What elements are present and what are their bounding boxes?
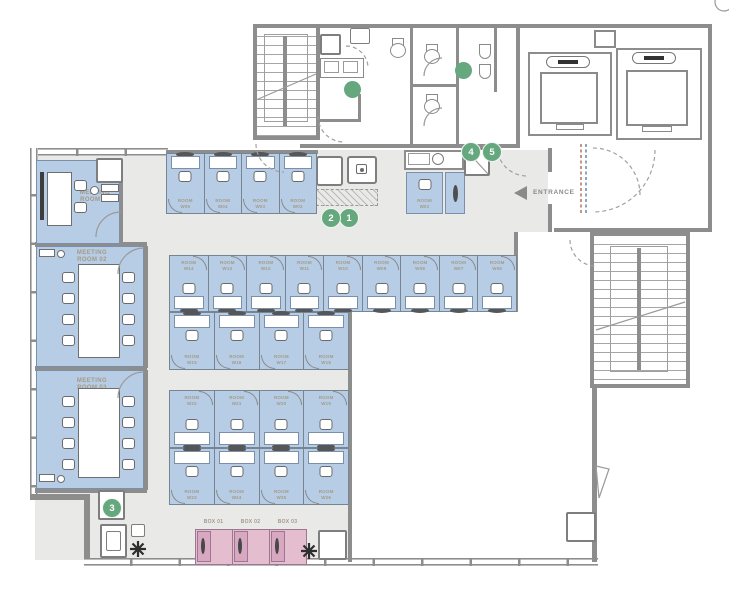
chair-icon: [122, 417, 135, 428]
work-booth-w01: ROOMW01: [406, 172, 443, 214]
meeting-table: [47, 172, 72, 226]
work-booth: ROOMW25: [259, 448, 305, 505]
sink-circle: [432, 153, 444, 165]
chair-icon: [62, 438, 75, 449]
chair-icon: [122, 314, 135, 325]
column: [96, 158, 123, 183]
chair-icon: [62, 459, 75, 470]
elevator-sill: [642, 126, 672, 132]
chair-icon: [62, 335, 75, 346]
urinal-icon: [479, 44, 491, 59]
chair-icon: [62, 272, 75, 283]
work-booth: ROOMW15: [169, 312, 215, 370]
work-booth: ROOMW12: [246, 255, 286, 312]
marker-3[interactable]: 3: [102, 498, 122, 518]
work-booth: ROOMW17: [259, 312, 305, 370]
wall: [358, 94, 361, 122]
booth-w01-label: ROOMW01: [407, 198, 442, 209]
hatched-counter: [316, 189, 378, 206]
elevator-door-2: [632, 52, 676, 64]
work-booth: ROOMW21: [214, 390, 260, 448]
work-booth: ROOMW05: [166, 153, 205, 214]
wall: [708, 24, 712, 232]
phone-box-3: [269, 529, 307, 565]
toilet-icon: [424, 44, 438, 62]
chair-icon: [62, 314, 75, 325]
equipment-box: [100, 524, 127, 558]
wall: [253, 136, 320, 140]
wall: [318, 119, 360, 122]
work-booth: ROOMW07: [439, 255, 479, 312]
phone-box-1: [195, 529, 233, 565]
wall: [84, 494, 90, 566]
marker-1[interactable]: 1: [339, 208, 359, 228]
credenza: [101, 184, 119, 192]
work-booth: ROOMW16: [214, 312, 260, 370]
work-booth: ROOMW10: [323, 255, 363, 312]
sink-basin: [324, 61, 339, 73]
window-wall-top-left: [30, 148, 168, 156]
elevator-door-1: [546, 56, 590, 68]
toilet-icon: [424, 94, 438, 112]
elevator-1: [540, 72, 598, 124]
work-booth: ROOMW03: [241, 153, 280, 214]
marker-4[interactable]: 4: [461, 142, 481, 162]
chair-icon: [122, 335, 135, 346]
chair-icon: [74, 202, 87, 213]
urinal-icon: [479, 64, 491, 79]
credenza: [101, 194, 119, 202]
work-booth: ROOMW20: [259, 390, 305, 448]
sideboard: [39, 474, 55, 482]
box-2-label: BOX 02: [232, 519, 269, 525]
work-booth: ROOMW09: [362, 255, 402, 312]
stool: [57, 475, 65, 483]
office-floor-plan: ENTRANCE MEETINGROOM 01 MEETINGROOM 02 M…: [0, 0, 729, 600]
wall: [548, 204, 552, 232]
green-dot: [455, 62, 472, 79]
chair-icon: [122, 293, 135, 304]
chair-icon: [62, 417, 75, 428]
marker-5[interactable]: 5: [482, 142, 502, 162]
chair-icon: [62, 293, 75, 304]
column: [566, 512, 596, 542]
stool: [90, 186, 99, 195]
work-booth: ROOMW19: [303, 390, 349, 448]
sink-basin: [343, 61, 358, 73]
wall: [516, 24, 520, 148]
work-booth: ROOMW06: [477, 255, 517, 312]
meeting-room-2-label: MEETINGROOM 02: [62, 250, 122, 264]
duct-box: [594, 30, 616, 48]
work-booth: ROOMW11: [285, 255, 325, 312]
duct-box: [350, 28, 370, 44]
chair-top-view: [453, 185, 458, 202]
meeting-table: [78, 264, 120, 358]
screen: [40, 172, 44, 220]
work-booth: ROOMW04: [204, 153, 243, 214]
chair-icon: [122, 438, 135, 449]
printer: [347, 156, 377, 184]
marker-2[interactable]: 2: [321, 208, 341, 228]
wall: [456, 28, 459, 146]
box-1-label: BOX 01: [195, 519, 232, 525]
chair-icon: [122, 396, 135, 407]
wall: [30, 494, 88, 500]
green-dot: [344, 81, 361, 98]
elevator-2: [626, 70, 688, 126]
work-booth: ROOMW02: [279, 153, 318, 214]
work-booth: ROOMW22: [169, 390, 215, 448]
janitor-closet: [320, 34, 341, 55]
elevator-sill: [556, 124, 584, 130]
wall: [686, 232, 690, 388]
wall: [590, 384, 690, 388]
locker: [316, 156, 343, 186]
booth-w01-vestibule: [445, 172, 465, 214]
work-booth: ROOMW08: [400, 255, 440, 312]
stair-rail: [637, 248, 641, 370]
work-booth: ROOMW13: [208, 255, 248, 312]
work-booth: ROOMW14: [169, 255, 209, 312]
wall: [548, 148, 552, 172]
entrance-label: ENTRANCE: [533, 189, 575, 196]
chair-icon: [122, 272, 135, 283]
chair-icon: [62, 396, 75, 407]
work-booth: ROOMW18: [303, 312, 349, 370]
stair-rail: [283, 36, 287, 126]
box-3-label: BOX 03: [269, 519, 306, 525]
chair-icon: [74, 180, 87, 191]
stool: [57, 250, 65, 258]
wall: [410, 84, 459, 87]
wall: [410, 28, 413, 146]
phone-box-2: [232, 529, 270, 565]
work-booth: ROOMW23: [169, 448, 215, 505]
work-booth: ROOMW26: [303, 448, 349, 505]
toilet-icon: [390, 38, 404, 56]
chair-icon: [122, 459, 135, 470]
column: [318, 530, 347, 560]
wall: [494, 28, 497, 92]
counter-inset: [408, 153, 430, 165]
sideboard: [39, 249, 55, 257]
entrance-arrow-icon: [514, 186, 527, 200]
meeting-table: [78, 388, 120, 478]
bench: [131, 524, 145, 537]
wall: [516, 24, 712, 28]
work-booth: ROOMW24: [214, 448, 260, 505]
